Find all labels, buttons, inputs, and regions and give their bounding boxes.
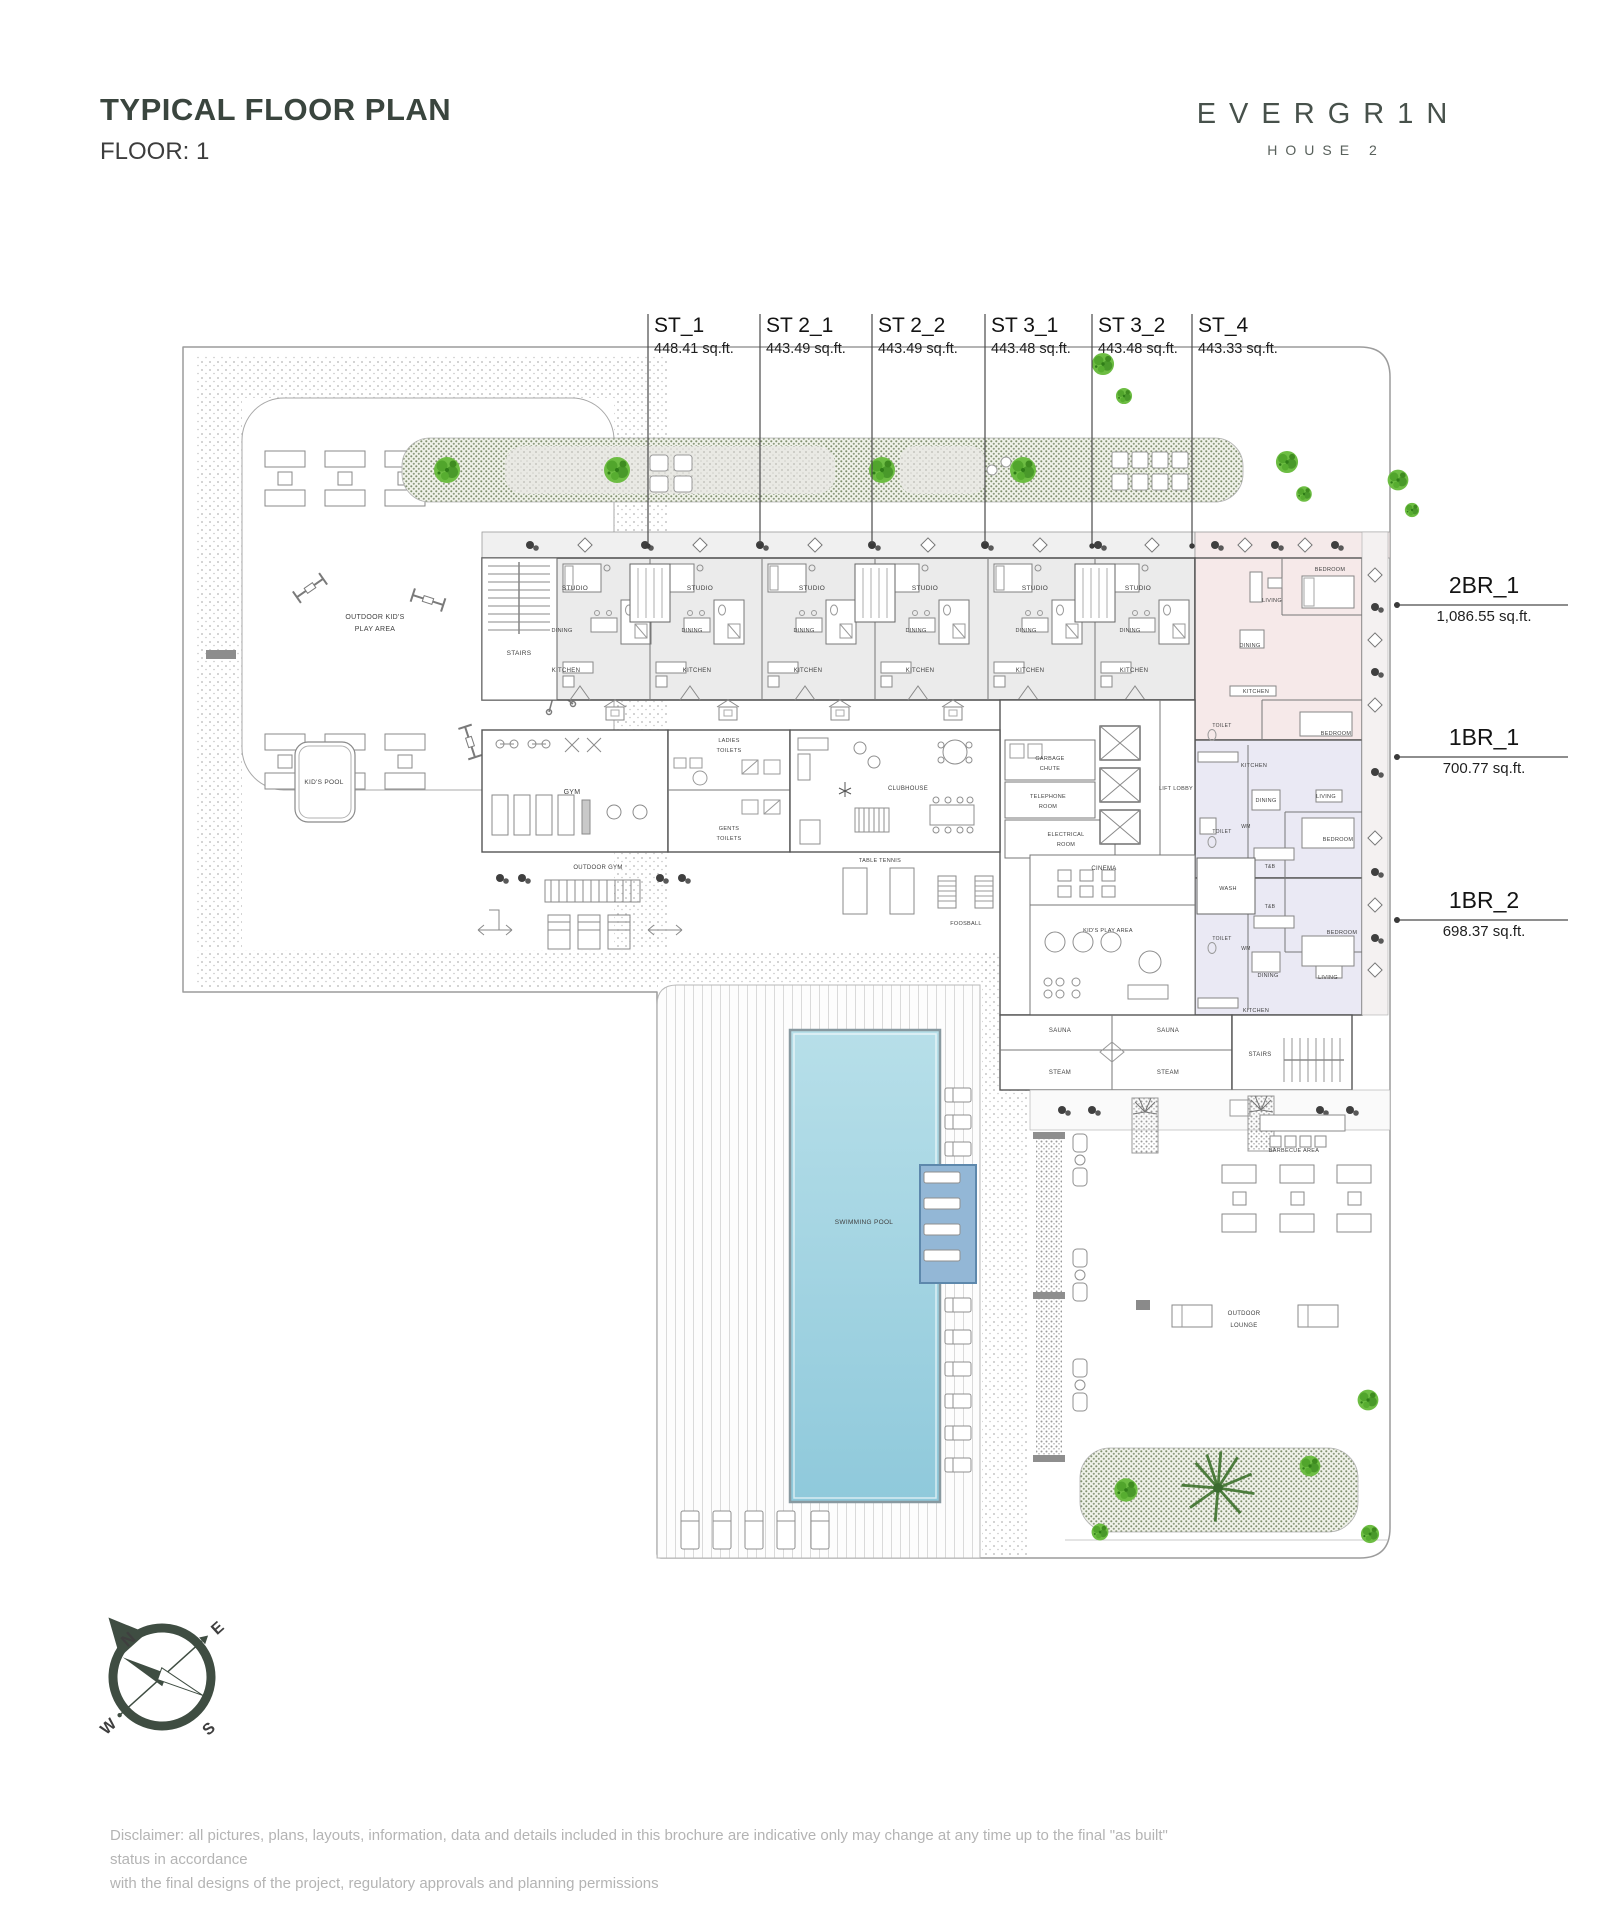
unit-area: 700.77 sq.ft.: [1398, 760, 1570, 777]
unit-area: 443.49 sq.ft.: [878, 341, 958, 357]
unit-callout: ST 2_2443.49 sq.ft.: [878, 314, 958, 357]
room-label: WASH: [1219, 886, 1237, 892]
room-label: CLUBHOUSE: [888, 786, 928, 792]
room-label: TOILET: [1212, 723, 1231, 729]
room-label: GARBAGE: [1035, 756, 1064, 762]
room-label: KITCHEN: [1241, 763, 1267, 769]
room-label: TOILET: [1212, 936, 1231, 942]
room-label: LIVING: [1316, 794, 1336, 800]
room-label: DINING: [1239, 643, 1260, 649]
room-label: CHUTE: [1040, 766, 1060, 772]
room-label: LIFT LOBBY: [1159, 786, 1193, 792]
room-label: KITCHEN: [552, 668, 580, 674]
brochure-page: TYPICAL FLOOR PLAN FLOOR: 1 EVERGR1N HOU…: [0, 0, 1600, 1905]
room-label: BEDROOM: [1315, 567, 1346, 573]
unit-area: 1,086.55 sq.ft.: [1398, 608, 1570, 625]
room-label: SWIMMING POOL: [835, 1219, 894, 1226]
room-label: KITCHEN: [1120, 668, 1148, 674]
unit-area: 443.48 sq.ft.: [1098, 341, 1178, 357]
room-label: TOILETS: [717, 836, 742, 842]
room-label: KITCHEN: [794, 668, 822, 674]
room-label: TABLE TENNIS: [859, 858, 901, 864]
unit-area: 443.49 sq.ft.: [766, 341, 846, 357]
room-label: STEAM: [1049, 1070, 1071, 1076]
room-label: DINING: [1015, 628, 1036, 634]
room-label: BEDROOM: [1321, 731, 1352, 737]
room-label: KID'S PLAY AREA: [1083, 928, 1133, 934]
unit-name: 2BR_1: [1398, 572, 1570, 599]
barbecue-counter: [1260, 1115, 1345, 1131]
room-label: STEAM: [1157, 1070, 1179, 1076]
unit-name: ST 2_2: [878, 314, 958, 338]
unit-name: ST_1: [654, 314, 734, 338]
room-label: KITCHEN: [1243, 1008, 1269, 1014]
room-label: PLAY AREA: [355, 626, 396, 633]
room-label: OUTDOOR GYM: [573, 865, 622, 871]
room-label: ELECTRICAL: [1048, 832, 1085, 838]
compass-s: S: [200, 1719, 220, 1739]
unit-name: ST 3_1: [991, 314, 1071, 338]
unit-callout: 1BR_2698.37 sq.ft.: [1398, 887, 1570, 940]
room-label: STUDIO: [562, 585, 588, 592]
room-label: STAIRS: [507, 650, 532, 657]
swimming-pool: [790, 1030, 940, 1502]
room-label: KITCHEN: [683, 668, 711, 674]
unit-callout: 2BR_11,086.55 sq.ft.: [1398, 572, 1570, 625]
disclaimer: Disclaimer: all pictures, plans, layouts…: [110, 1824, 1200, 1896]
compass: N E W S: [49, 1564, 274, 1789]
room-label: BEDROOM: [1323, 837, 1354, 843]
unit-callout: ST 3_2443.48 sq.ft.: [1098, 314, 1178, 357]
core-block: [1000, 700, 1195, 1015]
room-label: STUDIO: [687, 585, 713, 592]
room-label: ROOM: [1057, 842, 1075, 848]
room-label: WM: [1241, 824, 1250, 830]
floor-plan: OUTDOOR KID'SPLAY AREAKID'S POOLSTAIRSST…: [0, 0, 1600, 1905]
unit-area: 443.48 sq.ft.: [991, 341, 1071, 357]
unit-name: ST_4: [1198, 314, 1278, 338]
room-label: LIVING: [1318, 975, 1338, 981]
room-label: TOILET: [1212, 829, 1231, 835]
room-label: ROOM: [1039, 804, 1057, 810]
unit-name: 1BR_2: [1398, 887, 1570, 914]
room-label: GENTS: [719, 826, 739, 832]
room-label: KITCHEN: [1016, 668, 1044, 674]
room-label: TELEPHONE: [1030, 794, 1066, 800]
unit-name: ST 2_1: [766, 314, 846, 338]
room-label: DINING: [1255, 798, 1276, 804]
room-label: OUTDOOR: [1228, 1311, 1261, 1317]
unit-callout: ST 2_1443.49 sq.ft.: [766, 314, 846, 357]
pool-area: [657, 985, 980, 1558]
unit-area: 698.37 sq.ft.: [1398, 923, 1570, 940]
room-label: KID'S POOL: [304, 779, 343, 786]
unit-area: 448.41 sq.ft.: [654, 341, 734, 357]
room-label: STAIRS: [1248, 1052, 1271, 1058]
room-label: KITCHEN: [1243, 689, 1269, 695]
room-label: DINING: [551, 628, 572, 634]
room-label: SAUNA: [1049, 1028, 1071, 1034]
room-label: BARBECUE AREA: [1269, 1148, 1319, 1154]
unit-callout: ST_4443.33 sq.ft.: [1198, 314, 1278, 357]
compass-w: W: [97, 1715, 120, 1738]
room-label: STUDIO: [1022, 585, 1048, 592]
room-label: DINING: [905, 628, 926, 634]
unit-area: 443.33 sq.ft.: [1198, 341, 1278, 357]
unit-callout: 1BR_1700.77 sq.ft.: [1398, 724, 1570, 777]
room-label: FOOSBALL: [950, 921, 981, 927]
compass-e: E: [208, 1618, 228, 1638]
room-label: BEDROOM: [1327, 930, 1358, 936]
unit-callout: ST 3_1443.48 sq.ft.: [991, 314, 1071, 357]
room-label: WM: [1241, 946, 1250, 952]
disclaimer-line-1: Disclaimer: all pictures, plans, layouts…: [110, 1824, 1200, 1872]
stairs-top: [482, 558, 557, 700]
room-label: T&B: [1265, 904, 1276, 910]
room-label: T&B: [1265, 864, 1276, 870]
room-label: DINING: [793, 628, 814, 634]
unit-callout: ST_1448.41 sq.ft.: [654, 314, 734, 357]
disclaimer-line-2: with the final designs of the project, r…: [110, 1872, 1200, 1896]
unit-name: 1BR_1: [1398, 724, 1570, 751]
room-label: GYM: [564, 789, 581, 796]
room-label: SAUNA: [1157, 1028, 1179, 1034]
room-label: DINING: [1119, 628, 1140, 634]
room-label: OUTDOOR KID'S: [345, 614, 404, 621]
room-label: KITCHEN: [906, 668, 934, 674]
room-label: LADIES: [718, 738, 739, 744]
room-label: DINING: [1257, 973, 1278, 979]
room-label: STUDIO: [799, 585, 825, 592]
room-label: DINING: [681, 628, 702, 634]
room-label: STUDIO: [912, 585, 938, 592]
unit-name: ST 3_2: [1098, 314, 1178, 338]
room-label: CINEMA: [1091, 866, 1116, 872]
room-label: LIVING: [1262, 598, 1282, 604]
room-label: STUDIO: [1125, 585, 1151, 592]
room-label: TOILETS: [717, 748, 742, 754]
room-label: LOUNGE: [1230, 1323, 1257, 1329]
